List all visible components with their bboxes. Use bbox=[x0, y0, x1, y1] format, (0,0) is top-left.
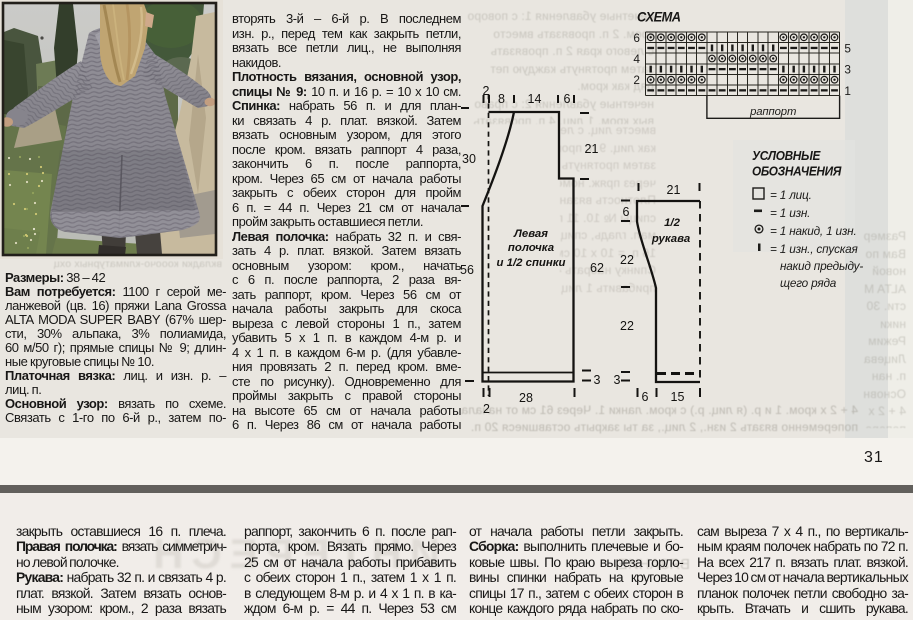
svg-text:14: 14 bbox=[528, 92, 542, 106]
svg-text:22: 22 bbox=[620, 319, 634, 333]
svg-text:62: 62 bbox=[590, 261, 604, 275]
svg-text:= 1 накид, 1 изн.: = 1 накид, 1 изн. bbox=[770, 224, 857, 238]
svg-text:30: 30 bbox=[462, 152, 476, 166]
svg-text:28: 28 bbox=[519, 391, 533, 405]
svg-text:раппорт: раппорт bbox=[749, 106, 796, 118]
svg-text:Левая: Левая bbox=[513, 228, 548, 240]
svg-text:3: 3 bbox=[844, 63, 851, 77]
svg-text:6: 6 bbox=[642, 390, 649, 404]
svg-text:= 1 изн.: = 1 изн. bbox=[770, 206, 810, 220]
svg-text:= 1 изн., спуская: = 1 изн., спуская bbox=[770, 242, 858, 256]
svg-text:1: 1 bbox=[844, 84, 851, 98]
svg-text:21: 21 bbox=[667, 183, 681, 197]
svg-text:6: 6 bbox=[564, 92, 571, 106]
svg-text:2: 2 bbox=[483, 402, 490, 416]
svg-text:21: 21 bbox=[585, 142, 599, 156]
svg-text:4: 4 bbox=[633, 52, 640, 66]
svg-text:= 1 лиц.: = 1 лиц. bbox=[770, 188, 812, 202]
svg-text:22: 22 bbox=[620, 253, 634, 267]
svg-text:6: 6 bbox=[623, 205, 630, 219]
svg-text:6: 6 bbox=[633, 31, 640, 45]
svg-text:рукава: рукава bbox=[651, 233, 690, 245]
svg-text:5: 5 bbox=[844, 41, 851, 55]
svg-text:8: 8 bbox=[498, 92, 505, 106]
svg-text:3: 3 bbox=[594, 373, 601, 387]
svg-text:15: 15 bbox=[671, 390, 685, 404]
svg-text:щего ряда: щего ряда bbox=[780, 276, 837, 290]
svg-text:полочка: полочка bbox=[508, 242, 554, 254]
svg-text:2: 2 bbox=[483, 84, 490, 98]
svg-text:3: 3 bbox=[614, 373, 621, 387]
svg-text:и 1/2 спинки: и 1/2 спинки bbox=[497, 257, 566, 269]
svg-text:накид предыду-: накид предыду- bbox=[780, 259, 863, 273]
svg-text:56: 56 bbox=[460, 263, 474, 277]
svg-text:1/2: 1/2 bbox=[664, 217, 680, 229]
